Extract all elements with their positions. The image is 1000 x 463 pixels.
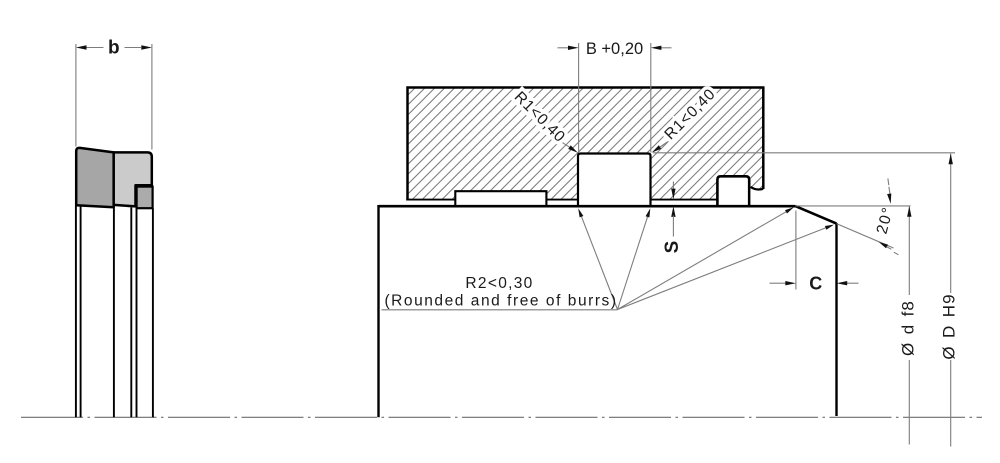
svg-text:Ø d f8: Ø d f8 <box>898 300 917 356</box>
svg-text:Ø D H9: Ø D H9 <box>939 293 958 359</box>
svg-text:C: C <box>809 274 822 294</box>
svg-text:B +0,20: B +0,20 <box>586 40 643 58</box>
svg-text:(Rounded and free of burrs): (Rounded and free of burrs) <box>384 293 617 310</box>
svg-text:S: S <box>662 241 683 254</box>
svg-text:R2<0,30: R2<0,30 <box>465 275 533 292</box>
svg-text:b: b <box>108 38 120 59</box>
